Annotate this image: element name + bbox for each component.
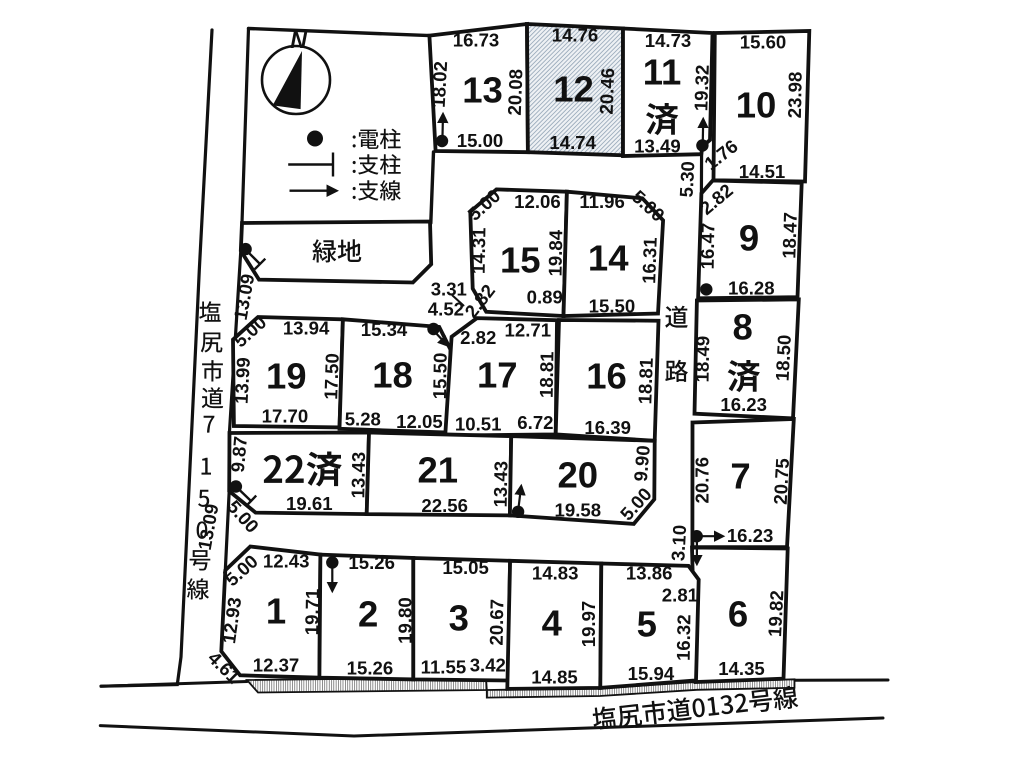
svg-text:19.82: 19.82 — [764, 590, 787, 638]
svg-text:19.61: 19.61 — [286, 493, 333, 514]
svg-text:20.46: 20.46 — [596, 68, 619, 115]
svg-text:15.50: 15.50 — [429, 353, 451, 400]
svg-text:4: 4 — [542, 603, 563, 644]
svg-text:11.55: 11.55 — [421, 656, 467, 677]
svg-text:13: 13 — [462, 70, 503, 111]
svg-text:15.00: 15.00 — [457, 130, 504, 151]
svg-text:15.34: 15.34 — [361, 319, 408, 340]
svg-text:10.51: 10.51 — [455, 413, 502, 434]
svg-text:18: 18 — [372, 355, 413, 396]
svg-text:13.43: 13.43 — [490, 461, 512, 508]
svg-text:21: 21 — [417, 450, 458, 491]
svg-text:17.50: 17.50 — [320, 353, 343, 400]
svg-text:7: 7 — [730, 456, 750, 497]
svg-text:23.98: 23.98 — [784, 72, 806, 119]
svg-text:16.23: 16.23 — [727, 525, 774, 546]
svg-text:13.94: 13.94 — [283, 318, 330, 339]
svg-text:8: 8 — [732, 307, 752, 348]
svg-text:2.82: 2.82 — [460, 327, 496, 348]
svg-text:15.05: 15.05 — [442, 557, 489, 578]
svg-text:18.02: 18.02 — [428, 61, 451, 109]
svg-text:14.51: 14.51 — [739, 161, 786, 182]
svg-text:16: 16 — [586, 356, 627, 397]
svg-text:10: 10 — [736, 85, 777, 126]
svg-text:3.10: 3.10 — [667, 524, 690, 561]
svg-text:12.05: 12.05 — [396, 411, 443, 432]
svg-text:14.31: 14.31 — [468, 227, 490, 274]
svg-text:5: 5 — [637, 604, 657, 645]
svg-text:18.81: 18.81 — [536, 351, 558, 398]
svg-text:9.90: 9.90 — [630, 445, 654, 483]
svg-text:14.35: 14.35 — [718, 658, 765, 679]
svg-text:19.71: 19.71 — [301, 589, 323, 636]
svg-text:14.83: 14.83 — [532, 562, 579, 583]
svg-text:2.81: 2.81 — [662, 585, 698, 606]
svg-text:12.37: 12.37 — [253, 655, 300, 676]
svg-text:13.99: 13.99 — [231, 357, 254, 405]
svg-text:15: 15 — [500, 240, 541, 281]
svg-text:19.84: 19.84 — [545, 229, 567, 277]
svg-text:12: 12 — [553, 69, 594, 110]
svg-text:20.76: 20.76 — [692, 457, 713, 504]
svg-text:0.89: 0.89 — [527, 286, 563, 307]
svg-text:19.97: 19.97 — [578, 601, 599, 648]
svg-text:12.43: 12.43 — [263, 550, 310, 571]
svg-text:16.73: 16.73 — [453, 29, 500, 50]
svg-text:12.71: 12.71 — [505, 320, 552, 341]
svg-text:4.52: 4.52 — [428, 299, 464, 320]
svg-text:14.74: 14.74 — [549, 132, 596, 153]
svg-text:18.47: 18.47 — [778, 212, 801, 259]
svg-text:5.30: 5.30 — [676, 161, 699, 198]
svg-text:13.43: 13.43 — [347, 452, 369, 499]
svg-text:15.26: 15.26 — [348, 552, 395, 573]
svg-text:6: 6 — [728, 594, 748, 635]
svg-text:16.31: 16.31 — [638, 237, 661, 284]
svg-text:20.08: 20.08 — [504, 69, 527, 116]
svg-text:5.28: 5.28 — [345, 408, 381, 429]
svg-text:14.73: 14.73 — [645, 30, 692, 51]
svg-text:19: 19 — [266, 356, 307, 397]
svg-text:19.58: 19.58 — [555, 500, 602, 521]
svg-text:19.32: 19.32 — [690, 64, 713, 111]
svg-text:17.70: 17.70 — [262, 405, 309, 426]
svg-text:3.31: 3.31 — [431, 279, 467, 300]
svg-text:14: 14 — [588, 238, 629, 279]
svg-text:2: 2 — [358, 594, 378, 635]
svg-text:20.67: 20.67 — [486, 599, 508, 646]
svg-text:1: 1 — [266, 591, 286, 632]
svg-text:15.94: 15.94 — [628, 663, 675, 684]
svg-text:11: 11 — [643, 52, 682, 93]
svg-text:16.47: 16.47 — [697, 223, 719, 270]
svg-text:17: 17 — [477, 355, 518, 396]
svg-text:18.50: 18.50 — [772, 334, 795, 382]
svg-text:15.60: 15.60 — [740, 31, 787, 52]
svg-text:20.75: 20.75 — [770, 458, 793, 506]
svg-text:12.06: 12.06 — [514, 191, 561, 212]
svg-text:13.49: 13.49 — [634, 136, 681, 157]
svg-text:16.23: 16.23 — [720, 394, 767, 415]
svg-text:22.56: 22.56 — [421, 495, 468, 516]
svg-text:9.87: 9.87 — [227, 435, 251, 473]
svg-text:14.76: 14.76 — [552, 25, 599, 46]
svg-text:14.85: 14.85 — [531, 667, 578, 688]
svg-text:11.96: 11.96 — [579, 191, 625, 212]
svg-text:N: N — [290, 27, 307, 53]
svg-text:18.49: 18.49 — [692, 336, 714, 383]
svg-text:15.26: 15.26 — [347, 657, 394, 678]
svg-text:16.39: 16.39 — [584, 417, 631, 438]
svg-text:3: 3 — [449, 598, 469, 639]
svg-text:18.81: 18.81 — [634, 357, 657, 404]
svg-text:6.72: 6.72 — [517, 412, 553, 433]
svg-text:9: 9 — [739, 218, 759, 259]
svg-text:19.80: 19.80 — [394, 597, 415, 644]
svg-text:16.32: 16.32 — [673, 614, 695, 661]
svg-text:20: 20 — [557, 455, 598, 496]
svg-text:15.50: 15.50 — [589, 295, 636, 316]
svg-text:3.42: 3.42 — [470, 655, 506, 676]
svg-text:16.28: 16.28 — [728, 277, 775, 298]
svg-text:13.86: 13.86 — [626, 562, 673, 583]
